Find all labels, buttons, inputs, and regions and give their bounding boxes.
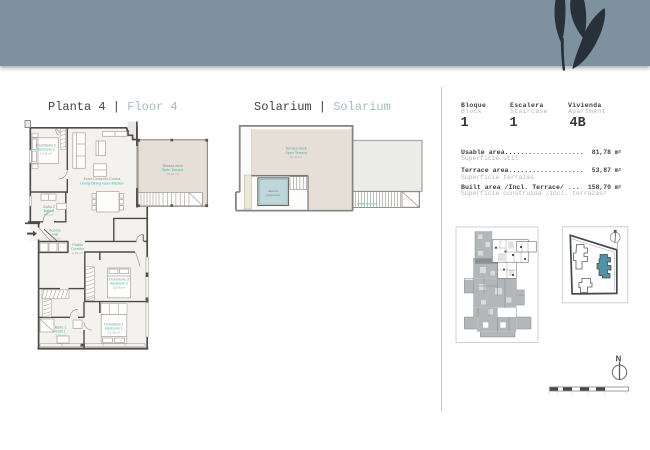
- svg-text:10,09 m²: 10,09 m²: [113, 286, 125, 290]
- svg-text:6,09 m²: 6,09 m²: [72, 251, 83, 255]
- svg-text:N: N: [616, 354, 622, 363]
- svg-text:3,74 m²: 3,74 m²: [55, 334, 66, 338]
- svg-text:1: 1: [557, 393, 559, 396]
- svg-text:4,03 m²: 4,03 m²: [44, 213, 55, 217]
- svg-text:4: 4: [604, 393, 606, 396]
- svg-text:2,18 m²: 2,18 m²: [50, 237, 61, 241]
- svg-text:12,55 m²: 12,55 m²: [108, 331, 120, 335]
- svg-text:3: 3: [587, 393, 589, 396]
- svg-text:52,34 m²: 52,34 m²: [290, 155, 302, 159]
- svg-text:2: 2: [571, 393, 573, 396]
- svg-text:19,43 m²: 19,43 m²: [166, 172, 178, 176]
- svg-text:(opcional): (opcional): [266, 193, 279, 197]
- svg-text:Living-Dining room-Kitchen: Living-Dining room-Kitchen: [80, 181, 123, 185]
- svg-text:5: 5: [626, 393, 628, 396]
- svg-text:10,21 m²: 10,21 m²: [40, 152, 52, 156]
- svg-text:0: 0: [549, 393, 551, 396]
- svg-text:escalera acceso: escalera acceso: [357, 201, 378, 205]
